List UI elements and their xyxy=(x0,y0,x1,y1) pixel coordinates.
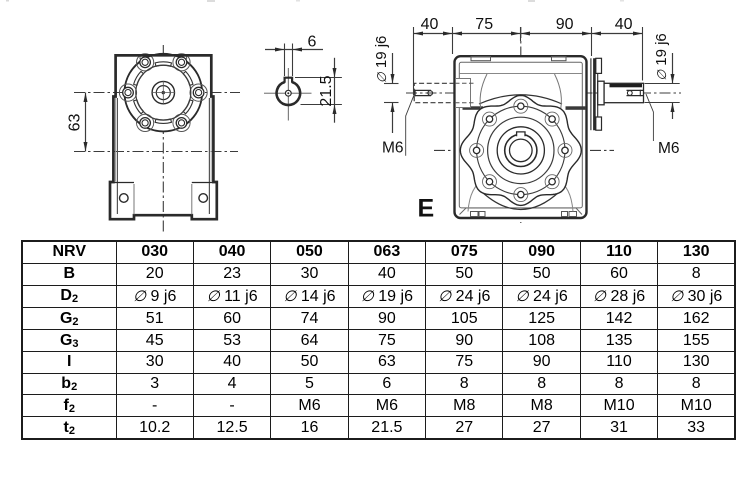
svg-text:21.5: 21.5 xyxy=(318,75,335,106)
svg-text:E: E xyxy=(418,195,435,223)
svg-text:90: 90 xyxy=(556,16,574,33)
svg-text:∅ 19 j6: ∅ 19 j6 xyxy=(653,33,670,81)
svg-text:M6: M6 xyxy=(658,140,680,157)
svg-text:63: 63 xyxy=(67,114,84,132)
svg-text:75: 75 xyxy=(475,16,493,33)
svg-text:M6: M6 xyxy=(382,140,404,157)
svg-text:40: 40 xyxy=(615,16,633,33)
svg-text:40: 40 xyxy=(421,16,439,33)
svg-text:∅ 19 j6: ∅ 19 j6 xyxy=(373,36,390,84)
svg-text:6: 6 xyxy=(308,34,317,51)
